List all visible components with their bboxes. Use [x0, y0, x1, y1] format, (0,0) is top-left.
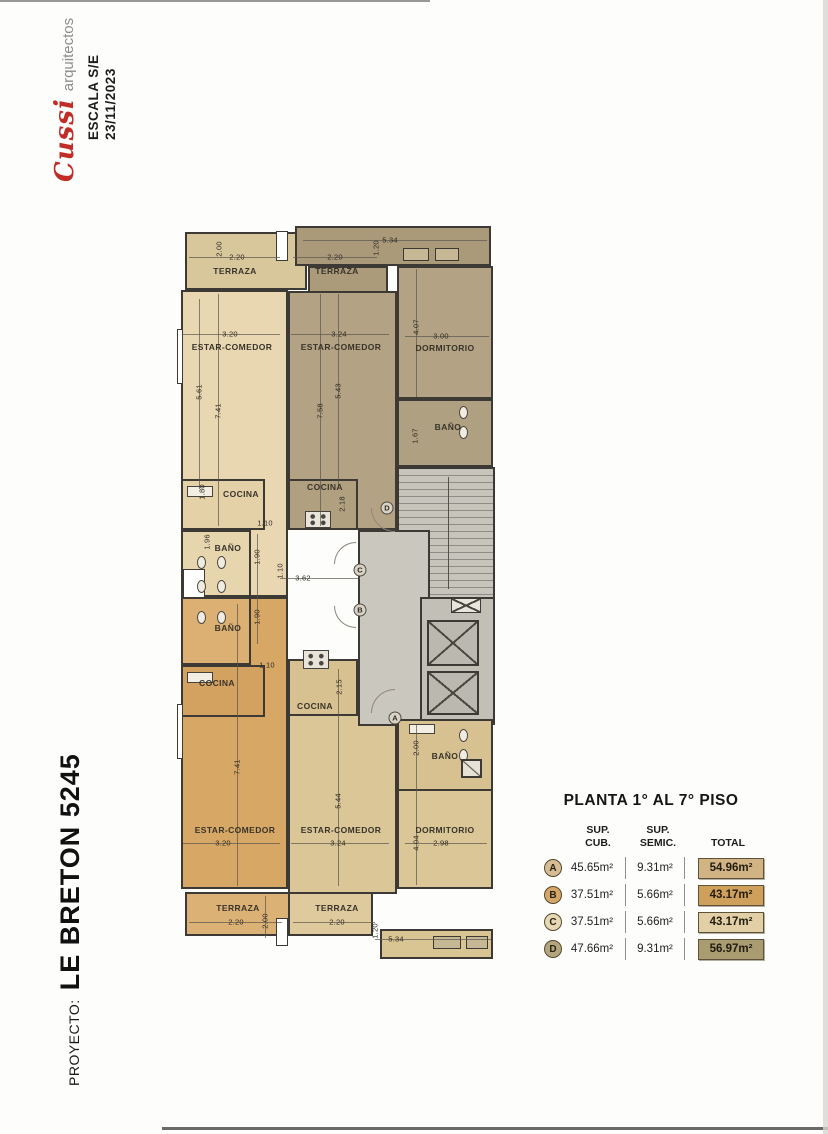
planter-box	[403, 248, 429, 261]
col-header-sup-semic: SUP. SEMIC.	[626, 824, 690, 850]
firm-signature: Cussiarquitectos	[52, 18, 78, 182]
dimension-label: 2.20	[327, 253, 342, 261]
window-opening	[177, 329, 183, 384]
dimension-label: 2.18	[338, 496, 346, 511]
dimension-label: 7.41	[233, 759, 241, 774]
room-label: DORMITORIO	[415, 344, 474, 353]
toilet-icon	[197, 580, 206, 593]
unit-circle-A: A	[544, 859, 562, 877]
col-header-total: TOTAL	[690, 837, 766, 850]
dimension-label: 2.00	[261, 913, 269, 928]
column-divider	[625, 911, 626, 933]
bath-vanity	[409, 724, 435, 734]
total-value: 54.96m²	[698, 858, 764, 879]
room-label: TERRAZA	[315, 904, 358, 913]
toilet-icon	[197, 611, 206, 624]
summary-header-row: SUP. CUB. SUP. SEMIC. TOTAL	[540, 824, 820, 850]
dimension-label: 5.61	[195, 384, 203, 399]
room-label: TERRAZA	[216, 904, 259, 913]
summary-title: PLANTA 1° AL 7° PISO	[546, 792, 756, 810]
dimension-line	[280, 578, 360, 579]
summary-row-A: A45.65m²9.31m²54.96m²	[540, 858, 820, 878]
column-divider	[625, 884, 626, 906]
dimension-label: 2.20	[329, 918, 344, 926]
dimension-label: 7.58	[316, 403, 324, 418]
dimension-label: 3.00	[433, 332, 448, 340]
room-label: ESTAR-COMEDOR	[301, 343, 382, 352]
room-label: COCINA	[223, 490, 259, 499]
elevator-car	[427, 671, 479, 715]
dimension-line	[183, 843, 280, 844]
window-opening	[177, 704, 183, 759]
room-label: BAÑO	[435, 423, 462, 432]
dimension-label: 1.90	[253, 609, 261, 624]
project-label: PROYECTO:	[66, 999, 82, 1086]
dimension-label: 1.20	[372, 240, 380, 255]
bidet-icon	[217, 556, 226, 569]
room-label: BAÑO	[432, 752, 459, 761]
dimension-label: 5.43	[334, 383, 342, 398]
dimension-label: 3.20	[215, 839, 230, 847]
dimension-label: 1.10	[259, 661, 274, 669]
unit-circle-C: C	[544, 913, 562, 931]
planter-box	[466, 936, 488, 949]
door-swing	[334, 542, 356, 564]
unit-d-balcony	[295, 226, 491, 266]
unit-circle-B: B	[544, 886, 562, 904]
toilet-icon	[459, 406, 468, 419]
sup-cub-value: 47.66m²	[562, 943, 622, 955]
column-divider	[684, 938, 685, 960]
duct-shaft	[451, 598, 481, 613]
unit-c-terraza	[185, 232, 307, 290]
sup-semic-value: 9.31m²	[629, 943, 681, 955]
dimension-label: 1.10	[276, 563, 284, 578]
unit-marker-C: C	[354, 564, 367, 577]
dimension-label: 2.20	[228, 918, 243, 926]
stove-icon	[303, 650, 329, 669]
area-summary: PLANTA 1° AL 7° PISO SUP. CUB. SUP. SEMI…	[540, 792, 820, 966]
sup-cub-value: 37.51m²	[562, 889, 622, 901]
sup-semic-value: 9.31m²	[629, 862, 681, 874]
room-label: BAÑO	[215, 544, 242, 553]
unit-marker-A: A	[389, 712, 402, 725]
dimension-label: 2.00	[215, 241, 223, 256]
toilet-icon	[197, 556, 206, 569]
unit-marker-B: B	[354, 604, 367, 617]
scan-edge-top	[0, 0, 430, 2]
room-label: DORMITORIO	[415, 826, 474, 835]
dimension-label: 3.24	[331, 330, 346, 338]
dimension-label: 5.34	[388, 935, 403, 943]
project-name: LE BRETON 5245	[55, 753, 85, 990]
dimension-label: 3.24	[330, 839, 345, 847]
bidet-icon	[217, 580, 226, 593]
room-label: COCINA	[297, 702, 333, 711]
summary-row-C: C37.51m²5.66m²43.17m²	[540, 912, 820, 932]
room-label: ESTAR-COMEDOR	[301, 826, 382, 835]
dimension-label: 3.20	[222, 330, 237, 338]
room-label: COCINA	[199, 679, 235, 688]
dimension-line	[338, 669, 339, 886]
unit-circle-D: D	[544, 940, 562, 958]
dimension-label: 4.07	[412, 319, 420, 334]
sup-cub-value: 37.51m²	[562, 916, 622, 928]
shower-icon	[461, 759, 482, 778]
scale-text: ESCALA S/E	[87, 54, 101, 140]
dimension-label: 4.04	[412, 835, 420, 850]
project-title: PROYECTO:LE BRETON 5245	[57, 753, 84, 1086]
dimension-label: 2.98	[433, 839, 448, 847]
col-header-sup-cub: SUP. CUB.	[570, 824, 626, 850]
dimension-label: 1.96	[203, 534, 211, 549]
elevator-car	[427, 620, 479, 666]
unit-a-terraza	[288, 892, 373, 936]
dimension-label: 2.15	[335, 679, 343, 694]
dimension-label: 7.41	[214, 403, 222, 418]
summary-row-B: B37.51m²5.66m²43.17m²	[540, 885, 820, 905]
total-value: 43.17m²	[698, 885, 764, 906]
dimension-label: 5.44	[334, 793, 342, 808]
dimension-label: 2.00	[412, 740, 420, 755]
scan-edge-bottom	[162, 1127, 828, 1130]
dimension-label: 2.20	[229, 253, 244, 261]
firm-subtitle: arquitectos	[60, 18, 77, 91]
floor-plan: 2.002.20TERRAZA3.20ESTAR-COMEDOR5.617.41…	[175, 224, 501, 964]
dimension-label: 1.80	[198, 484, 206, 499]
unit-marker-D: D	[381, 502, 394, 515]
total-value: 56.97m²	[698, 939, 764, 960]
summary-rows: A45.65m²9.31m²54.96m²B37.51m²5.66m²43.17…	[540, 858, 820, 959]
stove-icon	[305, 511, 331, 528]
room-label: TERRAZA	[213, 267, 256, 276]
architectural-plan-sheet: { "sidebar": { "firm_script": "Cussi", "…	[0, 0, 828, 1134]
date-text: 23/11/2023	[104, 68, 118, 140]
scan-edge-right	[823, 0, 828, 1134]
sup-semic-value: 5.66m²	[629, 889, 681, 901]
toilet-icon	[459, 729, 468, 742]
column-divider	[684, 884, 685, 906]
room-label: TERRAZA	[315, 267, 358, 276]
sup-cub-value: 45.65m²	[562, 862, 622, 874]
room-label: ESTAR-COMEDOR	[195, 826, 276, 835]
column-divider	[625, 857, 626, 879]
planter-box	[433, 936, 461, 949]
dimension-label: 1.10	[257, 519, 272, 527]
room-label: ESTAR-COMEDOR	[192, 343, 273, 352]
firm-name: Cussi	[50, 98, 80, 182]
total-value: 43.17m²	[698, 912, 764, 933]
room-label: BAÑO	[215, 624, 242, 633]
dimension-label: 3.62	[295, 574, 310, 582]
planter-box	[435, 248, 459, 261]
dimension-line	[237, 604, 238, 886]
column-divider	[625, 938, 626, 960]
sup-semic-value: 5.66m²	[629, 916, 681, 928]
dimension-label: 1.20	[371, 923, 379, 938]
dimension-label: 1.67	[411, 428, 419, 443]
column-divider	[684, 911, 685, 933]
room-label: COCINA	[307, 483, 343, 492]
dimension-label: 1.90	[253, 549, 261, 564]
column-divider	[684, 857, 685, 879]
dimension-label: 5.34	[382, 236, 397, 244]
summary-row-D: D47.66m²9.31m²56.97m²	[540, 939, 820, 959]
